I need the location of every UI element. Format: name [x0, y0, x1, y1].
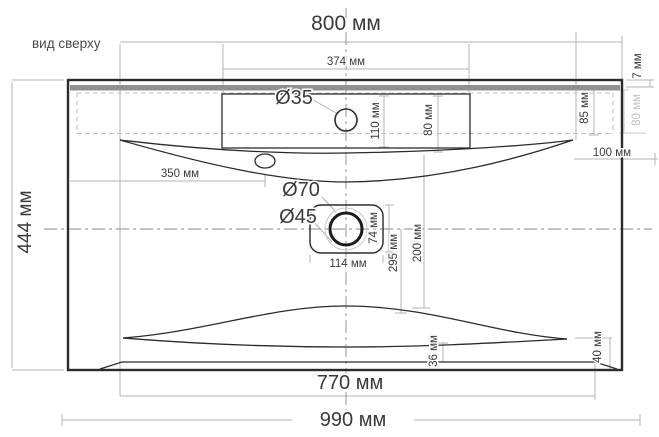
dim-shelf-width-label: 374 мм — [327, 56, 365, 68]
dim-total-width-label: 990 мм — [320, 409, 386, 431]
dim-back-80-gray-label: 80 мм — [631, 94, 643, 126]
dim-overall-depth-label: 444 мм — [15, 190, 36, 253]
hidden-contour — [77, 93, 613, 134]
technical-drawing: вид сверху 800 мм 374 мм Ø35 110 мм 80 м… — [0, 0, 659, 437]
dim-shelf-depth-110-label: 110 мм — [370, 102, 382, 139]
sink-top-view-svg: вид сверху 800 мм 374 мм Ø35 110 мм 80 м… — [0, 0, 659, 437]
faucet-diameter-label: Ø35 — [275, 87, 313, 109]
dim-front-36-label: 36 мм — [428, 335, 440, 367]
dim-back-85-label: 85 мм — [579, 92, 591, 124]
dim-rim-7-label: 7 мм — [632, 53, 644, 78]
dim-depth-200-label: 200 мм — [412, 224, 424, 262]
basin-back-rim-upper — [120, 140, 573, 153]
base-contour — [100, 362, 617, 369]
back-edge-bar — [70, 85, 620, 91]
dim-corner-100-label: 100 мм — [593, 147, 631, 159]
overflow-hole — [255, 154, 275, 168]
dim-shelf-depth-80-label: 80 мм — [423, 104, 435, 136]
dim-overall-width-label: 800 мм — [311, 12, 381, 35]
basin-front-rim-upper — [123, 306, 567, 339]
view-title: вид сверху — [32, 36, 101, 51]
sink-outline — [68, 80, 622, 370]
dim-overflow-350-label: 350 мм — [161, 168, 199, 180]
dim-drain-114-label: 114 мм — [329, 258, 366, 270]
dim-drain-74-label: 74 мм — [368, 212, 380, 244]
dim-base-width-label: 770 мм — [317, 372, 383, 394]
drain-hole-diameter-label: Ø45 — [279, 206, 317, 228]
dim-front-40-label: 40 мм — [592, 331, 604, 363]
dim-depth-295-label: 295 мм — [388, 234, 400, 272]
basin-front-rim-lower — [123, 338, 567, 347]
drain-recess-diameter-label: Ø70 — [282, 179, 320, 201]
centerlines — [44, 8, 652, 410]
outer-edge — [68, 80, 622, 370]
